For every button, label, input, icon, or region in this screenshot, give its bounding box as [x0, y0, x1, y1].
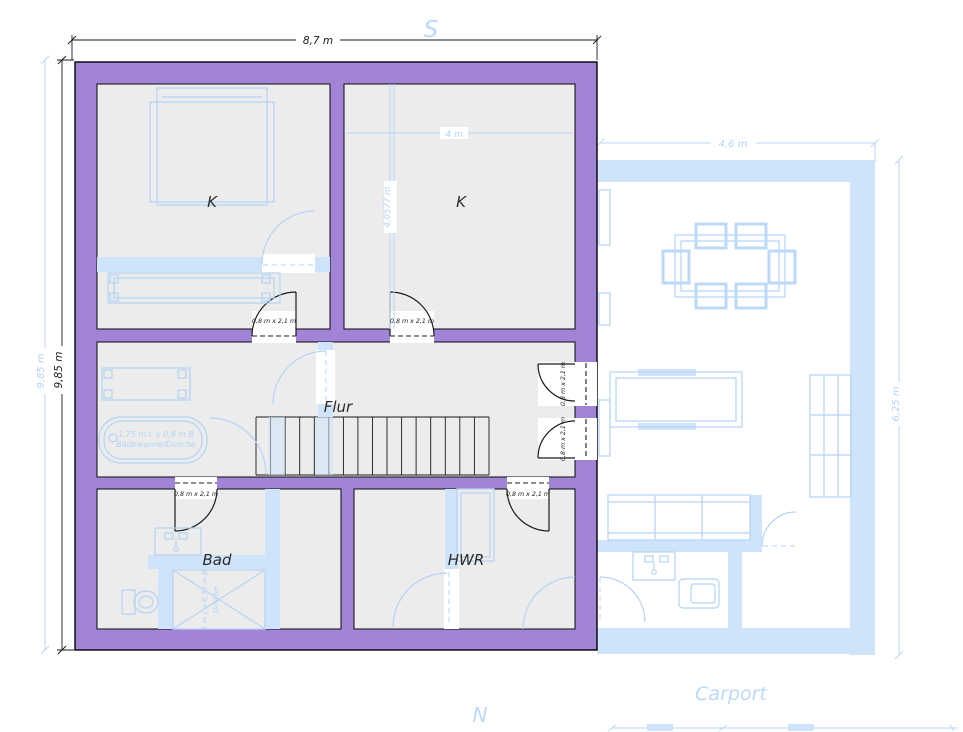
ghost-room-width-label: 4 m	[445, 130, 463, 140]
shower-size-label: 1 m L x 0,75 m B	[201, 570, 209, 630]
ghost-toilet	[679, 579, 719, 608]
compass-north-label: N	[473, 703, 488, 727]
dimension-left: 9,85 m	[53, 56, 74, 654]
door-size-label: 0,8 m x 2,1 m	[560, 362, 567, 406]
ghost-wall	[265, 489, 280, 629]
ghost-building-height-label: 9,85 m	[36, 353, 47, 388]
building-width-label: 8,7 m	[303, 35, 333, 47]
room-label-k-right: K	[456, 193, 467, 211]
ghost-wall	[315, 417, 333, 475]
ghost-window	[599, 400, 610, 456]
ghost-chair	[696, 224, 726, 248]
ghost-window	[599, 190, 610, 245]
floorplan-canvas[interactable]: 4,6 m 6,25 m Carport 0,8 m x 2,1 m	[0, 0, 963, 732]
shower-name-label: Dusche	[212, 587, 220, 613]
door-size-label: 0,8 m x 2,1 m	[174, 491, 218, 498]
ghost-chair	[663, 251, 689, 283]
ghost-door	[762, 512, 796, 553]
ghost-wall	[315, 257, 330, 272]
room-label-bad: Bad	[202, 551, 231, 569]
ghost-wall-right	[850, 182, 875, 655]
ghost-height-label: 6,25 m	[891, 386, 902, 421]
ghost-ground-floor-plan: 4,6 m 6,25 m Carport	[596, 137, 958, 731]
bathtub-name-label: Badewanne/Dusche	[116, 440, 195, 449]
ghost-window	[599, 293, 610, 325]
door-size-label: 0,8 m x 2,1 m	[390, 318, 434, 325]
ghost-chair	[769, 251, 795, 283]
door-size-label: 0,8 m x 2,1 m	[506, 491, 550, 498]
door-size-label: 0,8 m x 2,1 m	[560, 417, 567, 461]
ghost-kitchen-counter	[608, 495, 750, 540]
room-label-hwr: HWR	[448, 551, 485, 569]
ghost-couch	[610, 369, 742, 430]
ghost-chair	[696, 284, 726, 308]
ghost-bath-sink	[633, 552, 675, 580]
ghost-wall-segment	[750, 495, 762, 540]
door-size-label: 0,8 m x 2,1 m	[252, 318, 296, 325]
ghost-room-height-label: 4,0577 m	[383, 187, 393, 228]
ghost-dimension-bottom	[608, 724, 958, 731]
door-flur-east-lower[interactable]: 0,8 m x 2,1 m	[538, 417, 597, 461]
room-label-flur: Flur	[324, 398, 353, 416]
room-label-k-left: K	[207, 193, 218, 211]
ghost-dimension-width: 4,6 m	[596, 137, 879, 162]
ghost-wall	[318, 342, 333, 351]
building-height-label: 9,85 m	[53, 352, 65, 389]
door-flur-east-upper[interactable]: 0,8 m x 2,1 m	[538, 362, 597, 406]
dimension-top: 8,7 m	[68, 34, 601, 60]
carport-label: Carport	[695, 683, 768, 705]
ghost-wall-kitchen	[597, 540, 762, 552]
ghost-door	[600, 577, 645, 622]
ghost-wall-top	[597, 160, 875, 182]
ghost-wall	[158, 569, 173, 629]
ghost-wall-bottom	[597, 628, 875, 654]
ghost-dimension-height: 6,25 m	[891, 156, 905, 659]
ghost-width-label: 4,6 m	[719, 139, 748, 150]
ghost-wall	[268, 417, 285, 475]
ghost-shelf	[810, 375, 851, 497]
ghost-wall	[97, 257, 262, 272]
ghost-chair	[736, 284, 766, 308]
compass-south-label: S	[424, 17, 439, 43]
floorplan-drawing[interactable]: 4,6 m 6,25 m Carport 0,8 m x 2,1 m	[0, 0, 963, 732]
bathtub-size-label: 1,75 m L x 0,8 m B	[118, 430, 194, 439]
ghost-dimension-left: 9,85 m	[36, 56, 51, 654]
ghost-wall-bath	[728, 552, 742, 628]
ghost-chair	[736, 224, 766, 248]
ghost-dining-set	[663, 224, 795, 308]
